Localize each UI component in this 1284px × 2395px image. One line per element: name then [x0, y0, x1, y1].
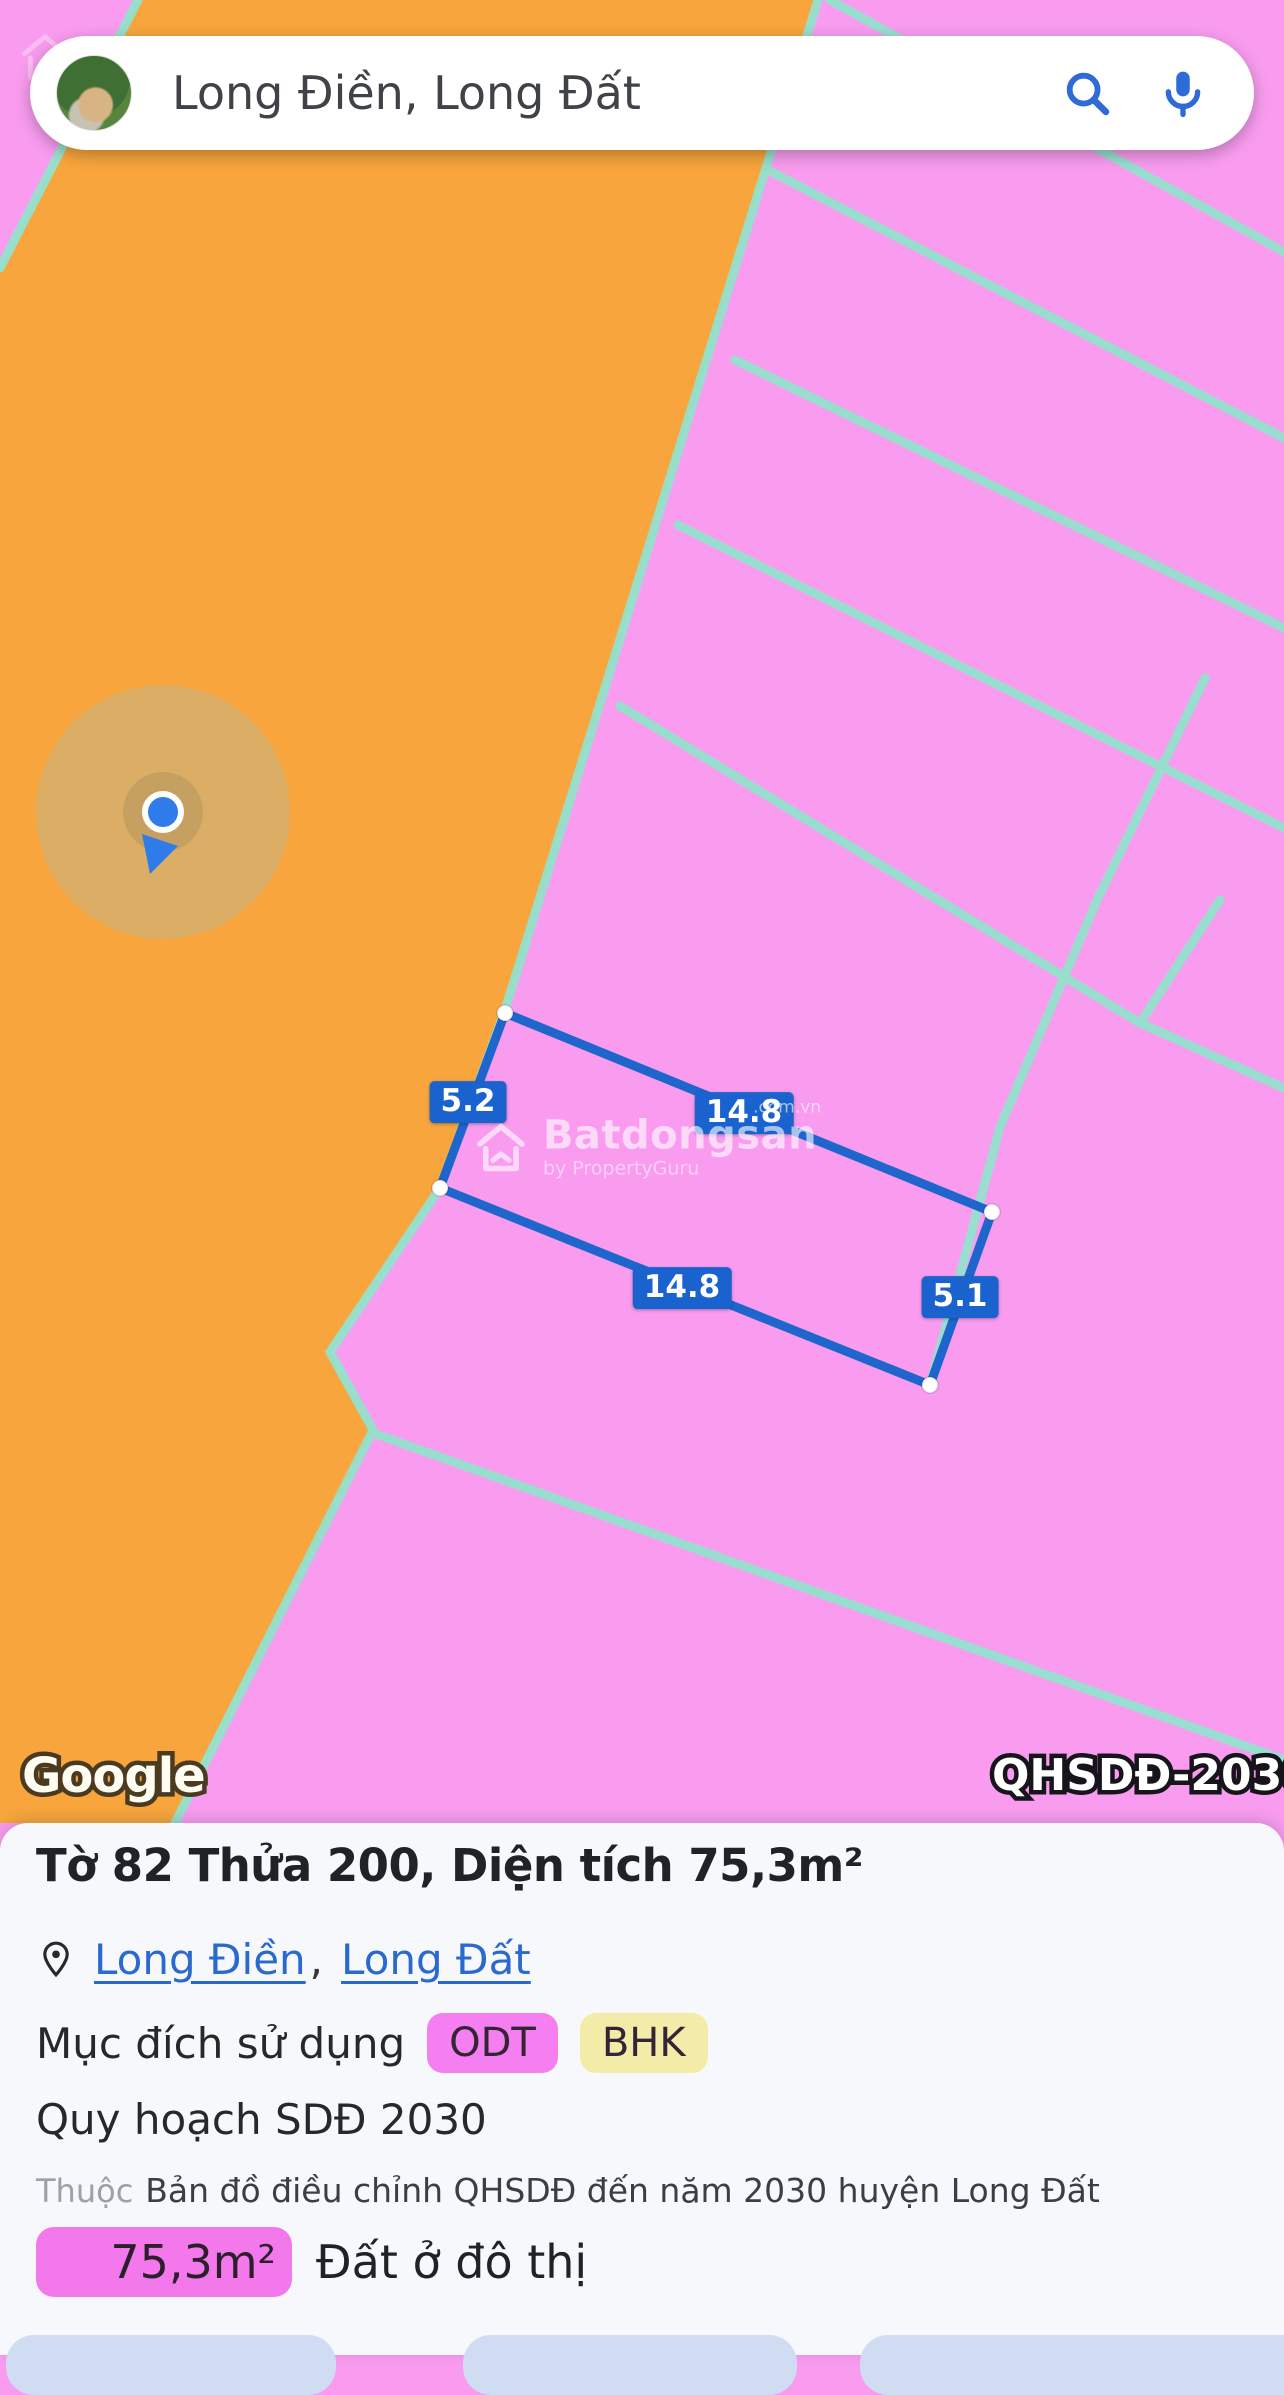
purpose-label: Mục đích sử dụng [36, 2019, 405, 2068]
search-input[interactable]: Long Điền, Long Đất [172, 66, 1060, 120]
parcel-info-panel: Tờ 82 Thửa 200, Diện tích 75,3m² Long Đi… [0, 1823, 1284, 2355]
zoning-area-row: 75,3m² Đất ở đô thị [36, 2227, 587, 2297]
microphone-icon[interactable] [1156, 66, 1210, 120]
plan-label: Quy hoạch SDĐ 2030 [36, 2095, 487, 2144]
location-separator: , [310, 1935, 323, 1984]
plan-row: Quy hoạch SDĐ 2030 [36, 2095, 487, 2144]
search-icon[interactable] [1060, 66, 1114, 120]
dimension-label: 14.8 [633, 1267, 732, 1309]
area-value-badge: 75,3m² [36, 2227, 292, 2297]
source-prefix: Thuộc [36, 2172, 133, 2210]
search-bar[interactable]: Long Điền, Long Đất [30, 36, 1254, 150]
parcel-location-row: Long Điền , Long Đất [36, 1933, 531, 1985]
land-purpose-row: Mục đích sử dụng ODT BHK [36, 2013, 708, 2073]
current-location-indicator [36, 685, 290, 939]
location-link-district[interactable]: Long Điền [94, 1935, 306, 1984]
action-chip[interactable] [860, 2335, 1284, 2395]
dimension-label: 5.1 [922, 1276, 999, 1318]
action-chip-row [0, 2335, 1284, 2395]
parcel-title: Tờ 82 Thửa 200, Diện tích 75,3m² [36, 1839, 863, 1892]
dimension-label: 14.8 [695, 1092, 794, 1134]
source-row: Thuộc Bản đồ điều chỉnh QHSDĐ đến năm 20… [36, 2171, 1100, 2210]
location-link-province[interactable]: Long Đất [341, 1935, 531, 1984]
action-chip[interactable] [6, 2335, 336, 2395]
plan-year-badge: QHSDĐ-2030 [992, 1750, 1284, 1801]
location-pin-icon [36, 1933, 76, 1985]
purpose-chip-bhk: BHK [580, 2013, 708, 2073]
source-text: Bản đồ điều chỉnh QHSDĐ đến năm 2030 huy… [145, 2171, 1100, 2210]
account-avatar[interactable] [56, 55, 132, 131]
action-chip[interactable] [463, 2335, 797, 2395]
dimension-label: 5.2 [430, 1081, 507, 1123]
map-canvas[interactable]: Google QHSDĐ-2030 5.2 14.8 14.8 5.1 .com… [0, 0, 1284, 1823]
zoning-type-label: Đất ở đô thị [316, 2235, 587, 2289]
purpose-chip-odt: ODT [427, 2013, 558, 2073]
google-logo: Google [22, 1748, 205, 1804]
